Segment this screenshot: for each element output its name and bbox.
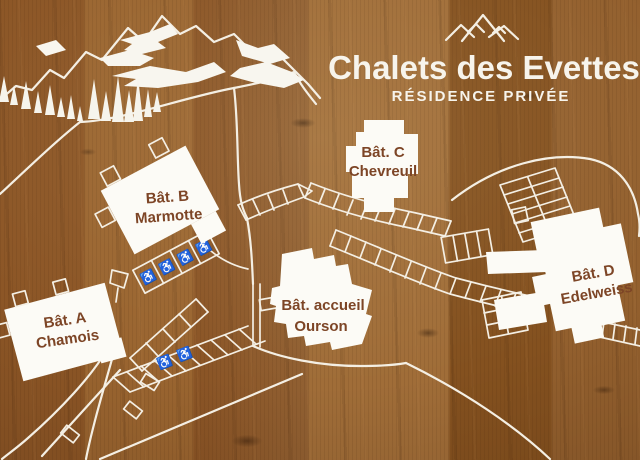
path-double-line — [253, 284, 260, 347]
building-c-name: Chevreuil — [349, 163, 417, 180]
building-b-label: Bât. B — [145, 188, 190, 208]
parking-fan-upper — [238, 184, 312, 220]
sign-subtitle: RÉSIDENCE PRIVÉE — [392, 88, 571, 105]
parking-row-short — [441, 229, 493, 263]
ridge-base-left — [0, 122, 80, 194]
road-bottom-center — [253, 346, 406, 366]
road-diagonal-long — [100, 374, 302, 459]
map-graphic: Chalets des Evettes RÉSIDENCE PRIVÉE — [0, 0, 640, 460]
building-accueil: Bât. accueil Ourson — [270, 248, 372, 350]
marker-flag — [110, 270, 128, 302]
site-map-sign: Chalets des Evettes RÉSIDENCE PRIVÉE — [0, 0, 640, 460]
road-to-ourson — [247, 218, 253, 284]
building-a: Bât. A Chamois — [0, 269, 127, 388]
sign-title: Chalets des Evettes — [328, 49, 640, 86]
building-c-label: Bât. C — [361, 144, 405, 161]
accessible-parking-icon: ♿ — [157, 258, 177, 277]
step-landing-2 — [124, 401, 143, 419]
road-from-ridge — [234, 88, 247, 218]
road-curve-bottom-right — [406, 363, 550, 459]
accessible-parking-icon: ♿ — [176, 248, 196, 267]
parking-band-diagonal: ♿ ♿ — [113, 326, 265, 392]
footpath-fan-2 — [86, 352, 114, 459]
road-by-accessible-row — [211, 251, 248, 269]
accessible-parking-icon: ♿ — [139, 268, 159, 287]
building-accueil-label: Bât. accueil — [281, 297, 364, 314]
building-d: Bât. D Edelweiss — [486, 188, 640, 350]
building-accueil-name: Ourson — [294, 318, 347, 335]
snow-patches — [36, 24, 304, 88]
mountain-logo-icon — [446, 15, 518, 41]
